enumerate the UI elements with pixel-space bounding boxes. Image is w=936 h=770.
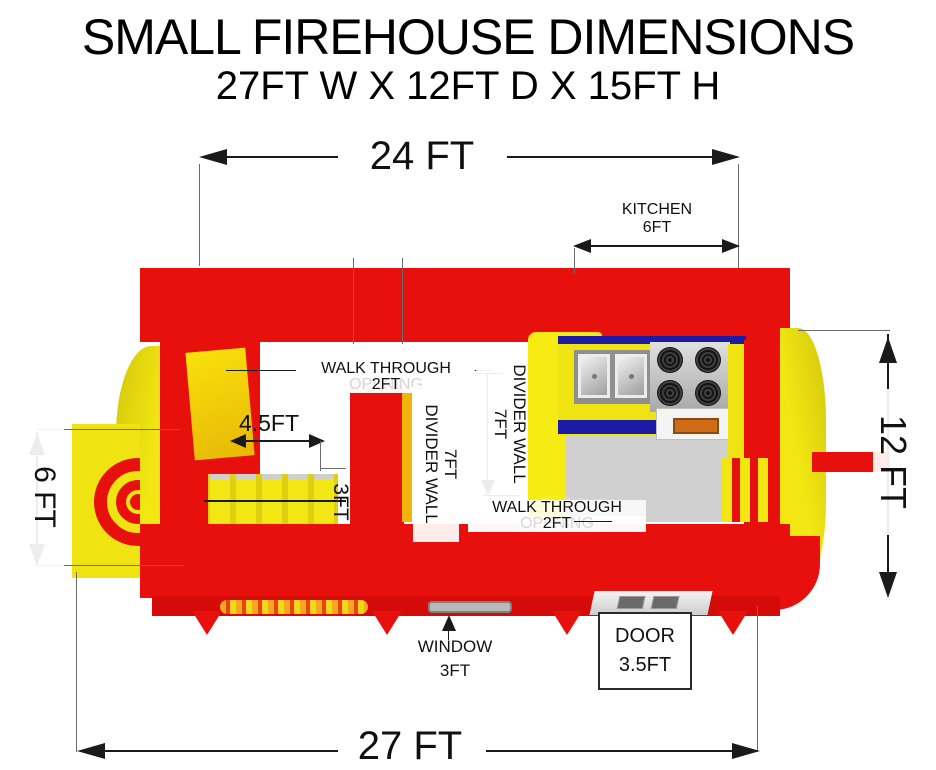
kitchen-oven [656, 408, 734, 440]
extension-line [199, 164, 200, 266]
door-label: DOOR [615, 625, 675, 648]
anchor-foot-icon [718, 611, 748, 638]
bullseye-center-icon [130, 494, 140, 510]
divider-wall-1-edge [402, 384, 412, 522]
stove-burner-icon [657, 380, 683, 406]
kitchen-counter-trim-front [558, 420, 660, 434]
divider-wall-1-size: 7FT [440, 386, 459, 542]
firehouse-dimensions-diagram: SMALL FIREHOUSE DIMENSIONS 27FT W X 12FT… [0, 0, 936, 770]
divider-wall-2-size: 7FT [491, 346, 510, 502]
window-slot [428, 601, 512, 613]
door-mat [617, 596, 646, 609]
kitchen-size-label: 6FT [597, 220, 717, 236]
tick-line [574, 521, 612, 522]
dim-24ft-line [507, 156, 735, 158]
extension-line [798, 330, 890, 331]
dim-12ft-label: 12 FT [873, 389, 913, 535]
anchor-foot-icon [372, 611, 402, 638]
sink-basin [578, 354, 610, 398]
door-callout-box: DOOR 3.5FT [598, 612, 692, 690]
arrow-left-icon [196, 149, 227, 165]
right-wall-stripes [722, 458, 772, 522]
dim-6ft-label: 6 FT [24, 426, 64, 568]
dim-3ft-label: 3FT [320, 432, 360, 572]
banner-art [220, 600, 368, 614]
extension-line [757, 606, 758, 752]
walkthrough-bottom-size: 2FT [468, 516, 646, 532]
divider-wall-2-name: DIVIDER WALL [509, 346, 528, 502]
extension-line [76, 572, 77, 752]
dim-27ft-line [486, 750, 752, 752]
stove-burner-icon [695, 380, 721, 406]
stove-burner-icon [657, 347, 683, 373]
leader-line [226, 370, 296, 371]
dim-27ft-line [82, 750, 338, 752]
dim-4-5ft-label: 4.5FT [226, 410, 312, 437]
kitchen-sink [574, 350, 652, 404]
arrow-up-icon [879, 334, 897, 363]
stove-burner-icon [695, 347, 721, 373]
arrow-left-icon [74, 743, 105, 759]
arrow-right-icon [722, 239, 743, 253]
dim-kitchen-line [576, 245, 736, 247]
anchor-foot-icon [192, 611, 222, 638]
arrow-left-icon [227, 434, 246, 448]
arrow-down-icon [879, 572, 897, 601]
dim-24ft-label: 24 FT [342, 134, 502, 179]
target-panel [72, 424, 140, 578]
dim-27ft-label: 27 FT [330, 724, 490, 769]
extension-line [402, 258, 403, 344]
extension-line [574, 248, 575, 274]
kitchen-stove [650, 342, 730, 412]
divider-wall-1-name: DIVIDER WALL [422, 386, 441, 542]
anchor-foot-icon [552, 611, 582, 638]
arrow-up-icon [442, 612, 456, 631]
oven-window [673, 418, 719, 434]
top-wall [140, 268, 790, 342]
extension-line [353, 258, 354, 344]
sink-basin [615, 354, 647, 398]
door-size-label: 3.5FT [619, 654, 671, 677]
window-label: WINDOW [415, 638, 495, 657]
bottom-wall [140, 524, 790, 598]
divider-wall-2-label: DIVIDER WALL 7FT [476, 346, 528, 502]
divider-wall-1-label: 7FT DIVIDER WALL [413, 386, 459, 542]
arrow-right-icon [712, 149, 743, 165]
arrow-right-icon [732, 743, 763, 759]
door-mat [651, 596, 680, 609]
kitchen-label: KITCHEN [597, 202, 717, 218]
window-size-label: 3FT [415, 662, 495, 681]
